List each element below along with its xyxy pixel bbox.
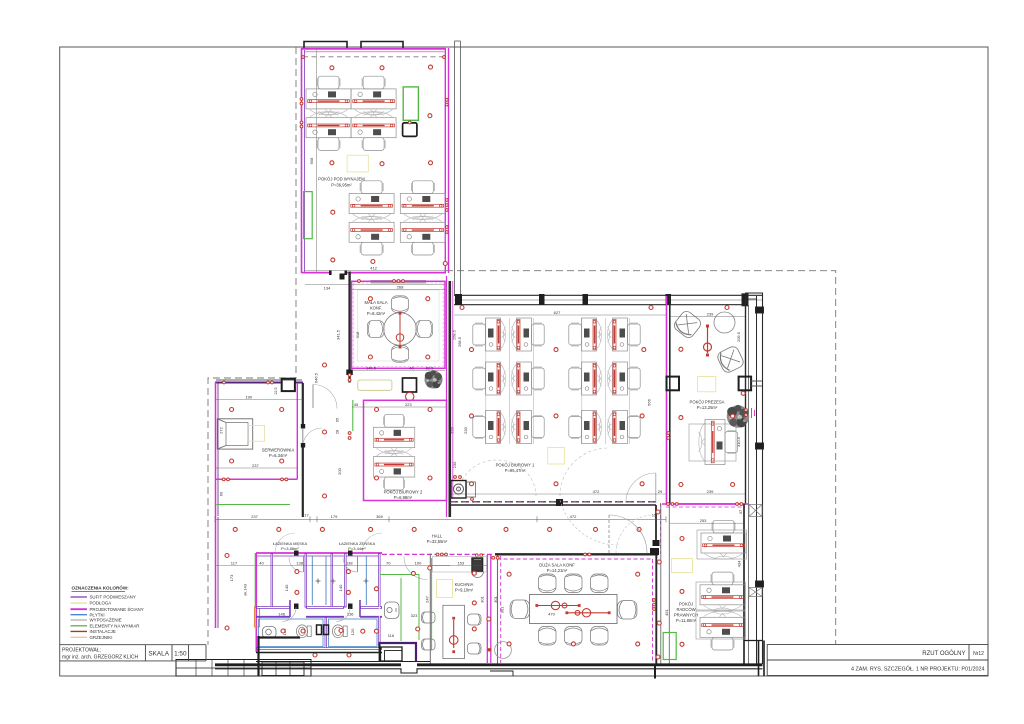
svg-text:658: 658 (309, 157, 314, 164)
svg-text:82.5: 82.5 (426, 365, 435, 370)
svg-text:PROJEKTOWANE ŚCIANY: PROJEKTOWANE ŚCIANY (90, 607, 144, 612)
svg-text:323: 323 (411, 613, 418, 618)
svg-text:451: 451 (664, 608, 669, 615)
svg-text:40: 40 (259, 560, 264, 565)
svg-text:GRZEJNIKI: GRZEJNIKI (90, 635, 113, 640)
svg-text:646.5: 646.5 (314, 372, 319, 383)
svg-text:POKÓJ BIUROWY 2: POKÓJ BIUROWY 2 (384, 490, 423, 495)
svg-text:412: 412 (370, 265, 377, 270)
svg-text:230: 230 (463, 426, 468, 433)
svg-text:P=8,42m²: P=8,42m² (367, 311, 386, 316)
svg-text:37: 37 (738, 509, 743, 514)
svg-text:POKÓJ BIUROWY 1: POKÓJ BIUROWY 1 (496, 463, 535, 468)
svg-text:173: 173 (229, 574, 234, 581)
svg-text:4 ZAM. RYS. SZCZEGÓŁ. 1 NR PRO: 4 ZAM. RYS. SZCZEGÓŁ. 1 NR PROJEKTU: P01… (851, 666, 985, 673)
svg-text:KONF.: KONF. (370, 306, 382, 311)
svg-text:472: 472 (593, 489, 600, 494)
svg-text:138: 138 (346, 560, 353, 565)
svg-text:369: 369 (376, 514, 383, 519)
svg-text:140: 140 (284, 584, 289, 591)
svg-text:P=95,47m²: P=95,47m² (505, 468, 526, 473)
svg-text:237: 237 (252, 463, 259, 468)
svg-text:179: 179 (331, 514, 338, 519)
svg-text:301: 301 (500, 606, 505, 613)
svg-text:P=6,98m²: P=6,98m² (394, 495, 413, 500)
svg-text:P=36,95m²: P=36,95m² (331, 183, 352, 188)
svg-text:P=32,55m²: P=32,55m² (427, 539, 448, 544)
svg-text:ELEMENTY NA WYMIAR: ELEMENTY NA WYMIAR (90, 623, 140, 628)
svg-text:268: 268 (397, 284, 404, 289)
svg-text:PROJEKTOWAŁ:: PROJEKTOWAŁ: (62, 648, 101, 654)
svg-text:239: 239 (707, 489, 714, 494)
svg-text:PODŁOGA: PODŁOGA (90, 601, 112, 606)
svg-text:RZUT OGÓLNY: RZUT OGÓLNY (922, 650, 965, 657)
svg-text:29: 29 (658, 489, 663, 494)
svg-text:209.5: 209.5 (736, 331, 741, 342)
svg-text:341.5: 341.5 (336, 329, 341, 340)
svg-text:P=3,44m²: P=3,44m² (348, 546, 366, 551)
svg-text:310.5: 310.5 (736, 436, 741, 447)
svg-text:627: 627 (554, 310, 561, 315)
svg-text:22.5: 22.5 (274, 388, 278, 395)
svg-text:OZNACZENIA KOLORÓW:: OZNACZENIA KOLORÓW: (72, 584, 130, 591)
svg-text:117: 117 (231, 560, 238, 565)
svg-text:239: 239 (707, 311, 714, 316)
svg-text:Nr12: Nr12 (973, 651, 984, 657)
svg-text:237: 237 (251, 514, 258, 519)
svg-text:17: 17 (304, 513, 309, 518)
svg-text:566: 566 (647, 398, 652, 405)
svg-text:PŁYTKI: PŁYTKI (90, 612, 105, 617)
svg-text:318: 318 (355, 331, 360, 338)
svg-text:HALL: HALL (432, 534, 443, 539)
svg-text:P=11,80m²: P=11,80m² (676, 618, 697, 623)
svg-text:POKÓJ: POKÓJ (679, 602, 693, 607)
svg-text:MAŁA SALA: MAŁA SALA (364, 300, 387, 305)
svg-text:223: 223 (405, 402, 412, 407)
svg-text:WYPOSAŻENIE: WYPOSAŻENIE (90, 618, 122, 623)
svg-text:RADCÓW: RADCÓW (676, 607, 695, 612)
svg-text:247: 247 (425, 595, 430, 602)
svg-text:PRAWNYCH: PRAWNYCH (674, 613, 698, 618)
svg-text:100: 100 (415, 560, 422, 565)
svg-text:95: 95 (334, 417, 339, 422)
svg-text:P=3,88m²: P=3,88m² (281, 546, 299, 551)
svg-text:268.5: 268.5 (452, 329, 457, 340)
svg-text:mgr inż. arch. GRZEGORZ KLICH: mgr inż. arch. GRZEGORZ KLICH (62, 655, 139, 661)
svg-text:472: 472 (570, 514, 577, 519)
svg-text:POKÓJ POD WYNAJEM: POKÓJ POD WYNAJEM (318, 177, 365, 182)
svg-text:145.5: 145.5 (366, 365, 377, 370)
svg-text:P=13,25m²: P=13,25m² (697, 405, 718, 410)
svg-text:P=6,34m²: P=6,34m² (269, 453, 288, 458)
svg-text:230: 230 (452, 461, 457, 468)
svg-text:153: 153 (457, 560, 464, 565)
svg-text:146: 146 (278, 612, 285, 617)
svg-text:SUFIT PODWIESZANY: SUFIT PODWIESZANY (90, 595, 136, 600)
svg-text:SERWEROWNIA: SERWEROWNIA (262, 448, 295, 453)
svg-text:KUCHNIA: KUCHNIA (455, 582, 474, 587)
svg-text:253: 253 (700, 518, 707, 523)
svg-text:1:50: 1:50 (174, 651, 187, 658)
svg-text:70: 70 (386, 560, 391, 565)
svg-text:190: 190 (245, 394, 252, 399)
svg-text:40: 40 (409, 365, 414, 370)
svg-text:45: 45 (354, 402, 359, 407)
svg-text:SKALA: SKALA (148, 651, 169, 658)
svg-text:434: 434 (736, 560, 741, 567)
svg-text:DUŻA SALA KONF: DUŻA SALA KONF (539, 563, 575, 568)
svg-text:138: 138 (296, 560, 303, 565)
svg-text:200: 200 (337, 467, 342, 474)
svg-text:116: 116 (388, 633, 395, 638)
svg-text:272: 272 (218, 426, 223, 433)
svg-text:120: 120 (350, 628, 355, 635)
svg-text:POKÓJ PREZESA: POKÓJ PREZESA (690, 400, 725, 405)
svg-text:P=14,21m²: P=14,21m² (547, 568, 568, 573)
svg-text:268.5: 268.5 (457, 336, 462, 347)
svg-text:28: 28 (334, 429, 339, 434)
svg-text:P=9,10m²: P=9,10m² (455, 588, 474, 593)
svg-text:ok.143: ok.143 (243, 583, 248, 596)
svg-text:301: 301 (480, 595, 485, 602)
svg-text:60: 60 (218, 491, 223, 496)
svg-text:134: 134 (324, 286, 331, 291)
svg-text:136: 136 (347, 612, 354, 617)
svg-text:470: 470 (548, 612, 555, 617)
svg-text:140: 140 (338, 584, 343, 591)
svg-text:INSTALACJE: INSTALACJE (90, 629, 116, 634)
